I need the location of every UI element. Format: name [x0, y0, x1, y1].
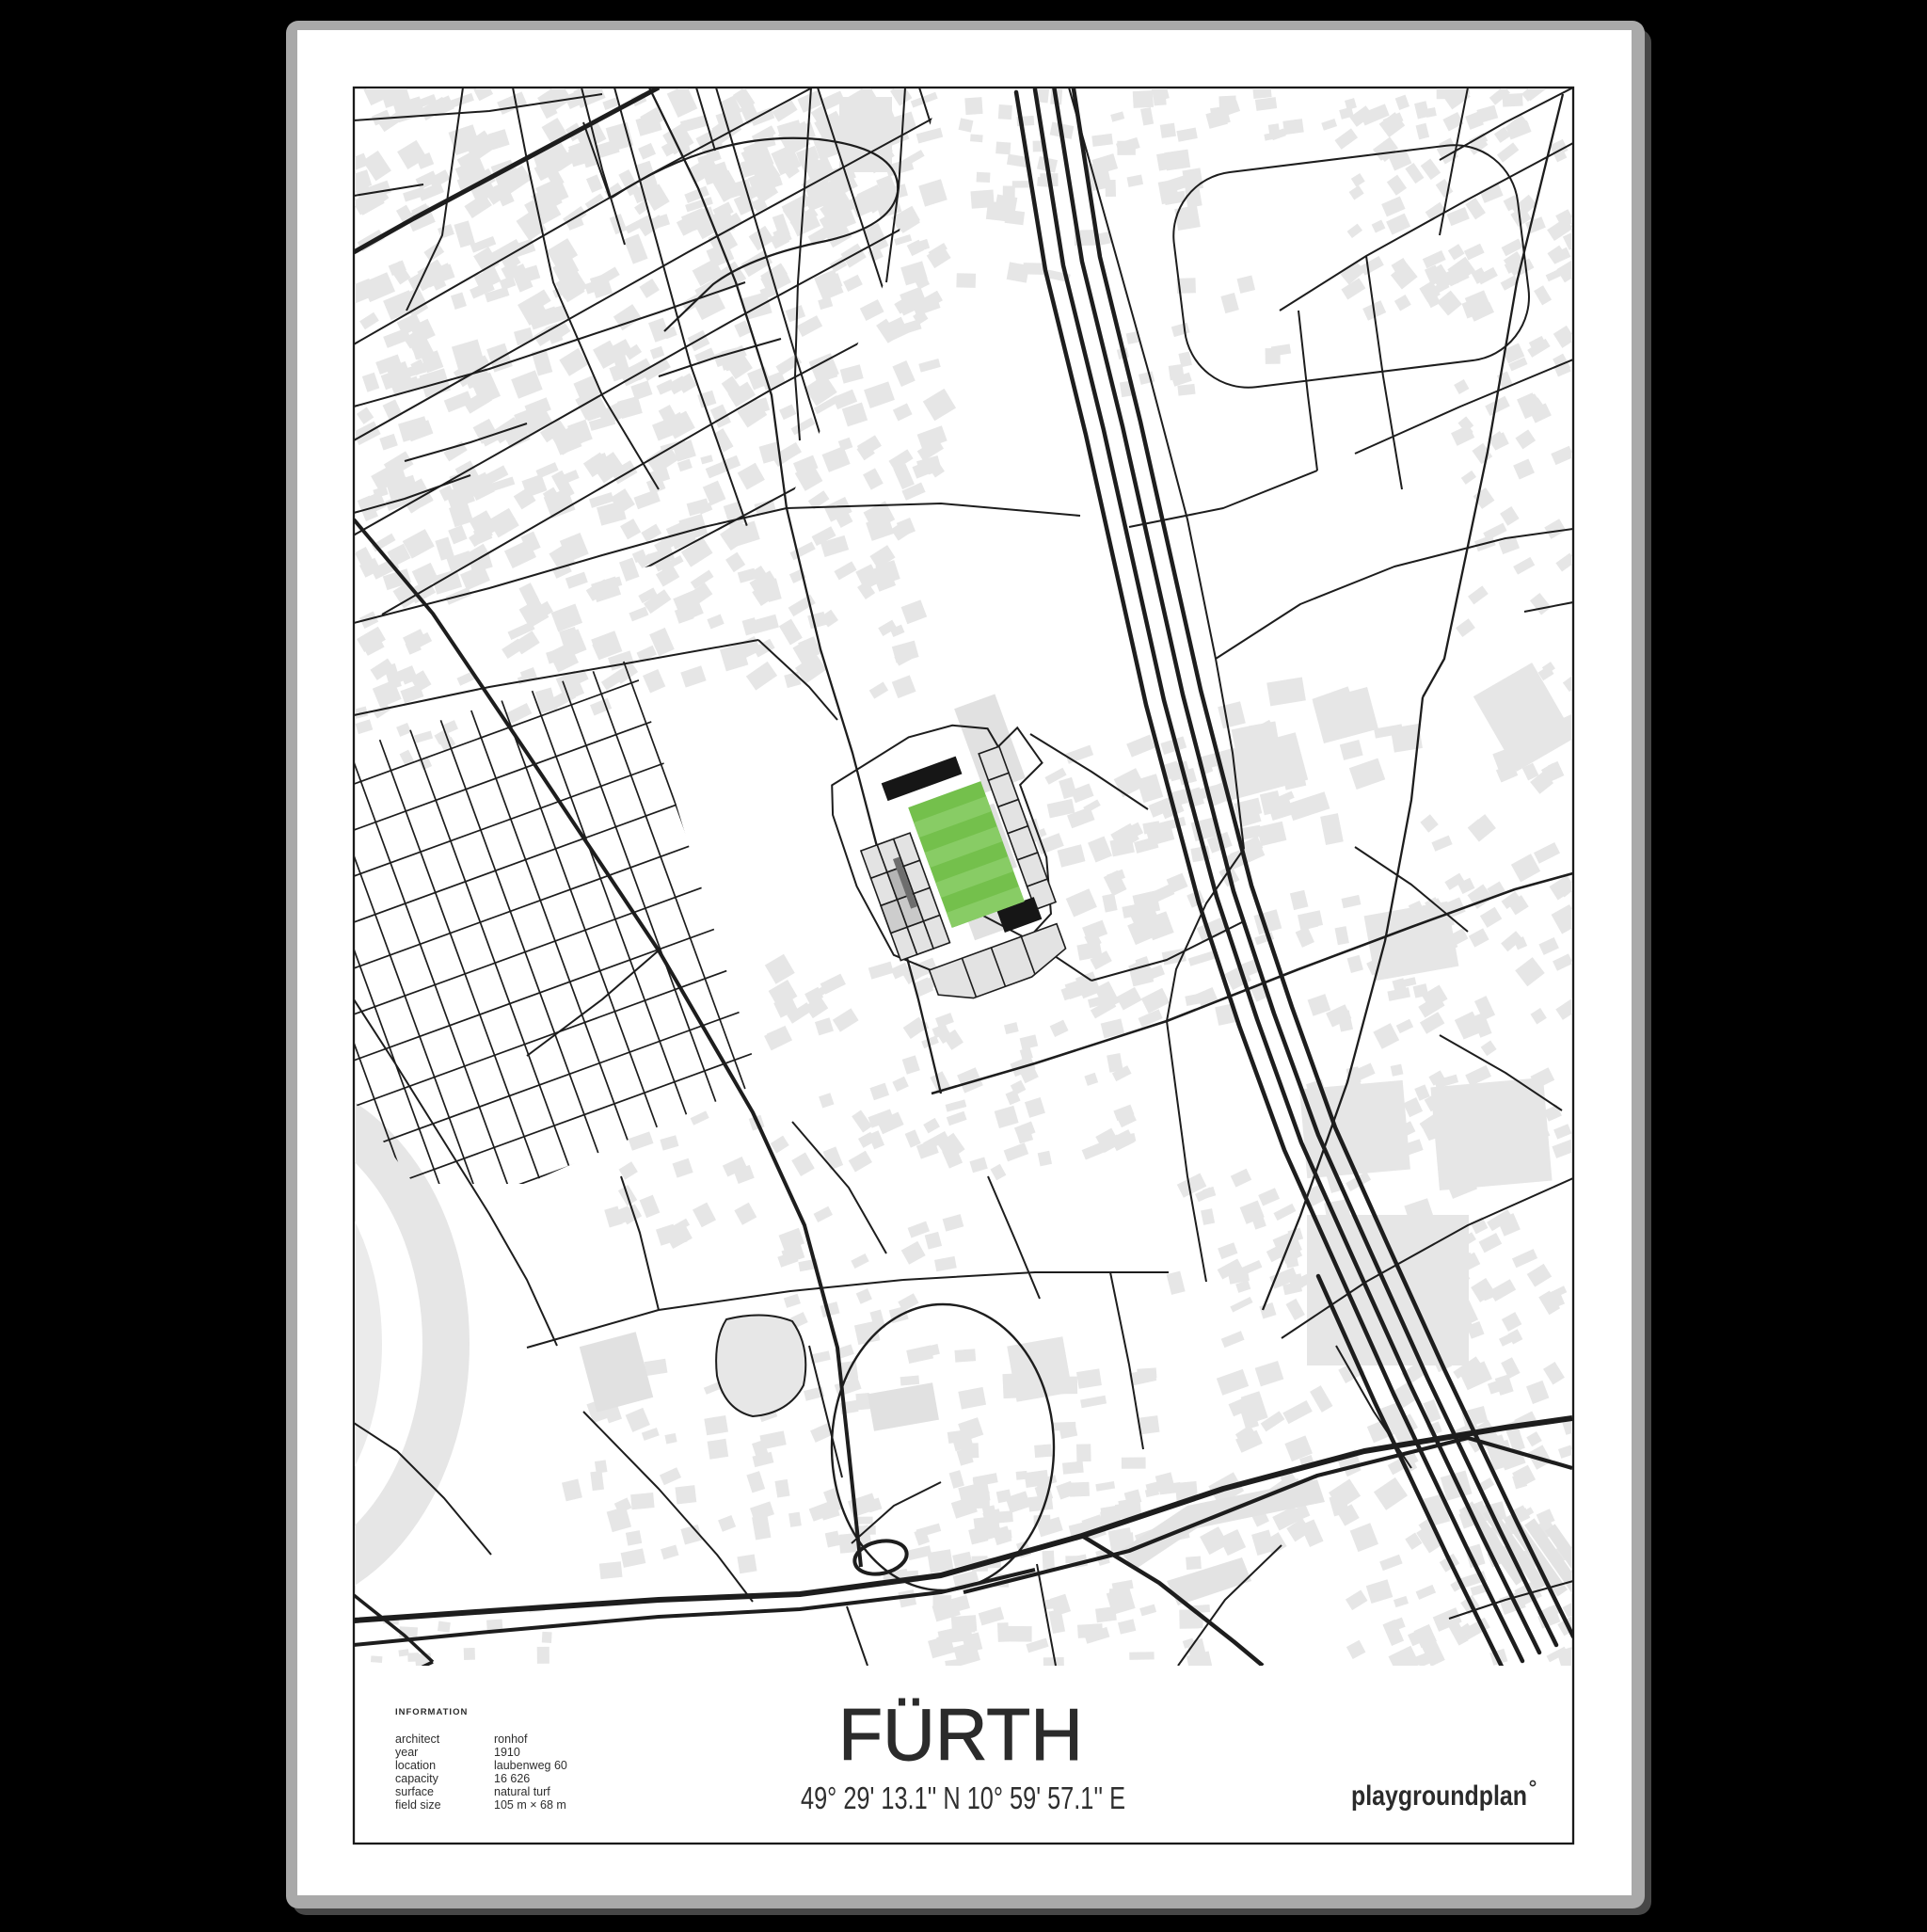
- svg-text:field size: field size: [395, 1798, 441, 1812]
- svg-text:playgroundplan: playgroundplan: [1351, 1780, 1527, 1812]
- svg-text:laubenweg 60: laubenweg 60: [494, 1759, 567, 1772]
- svg-text:natural turf: natural turf: [494, 1785, 550, 1798]
- svg-text:1910: 1910: [494, 1746, 520, 1759]
- svg-text:16 626: 16 626: [494, 1772, 530, 1785]
- svg-text:surface: surface: [395, 1785, 434, 1798]
- svg-text:architect: architect: [395, 1732, 440, 1746]
- svg-text:year: year: [395, 1746, 418, 1759]
- svg-text:location: location: [395, 1759, 436, 1772]
- svg-text:INFORMATION: INFORMATION: [395, 1707, 468, 1717]
- svg-text:105 m × 68 m: 105 m × 68 m: [494, 1798, 566, 1812]
- svg-text:49° 29' 13.1'' N 10° 59' 57.1: 49° 29' 13.1'' N 10° 59' 57.1'' E: [801, 1780, 1125, 1815]
- svg-text:capacity: capacity: [395, 1772, 439, 1785]
- svg-text:FÜRTH: FÜRTH: [838, 1693, 1083, 1776]
- svg-text:ronhof: ronhof: [494, 1732, 528, 1746]
